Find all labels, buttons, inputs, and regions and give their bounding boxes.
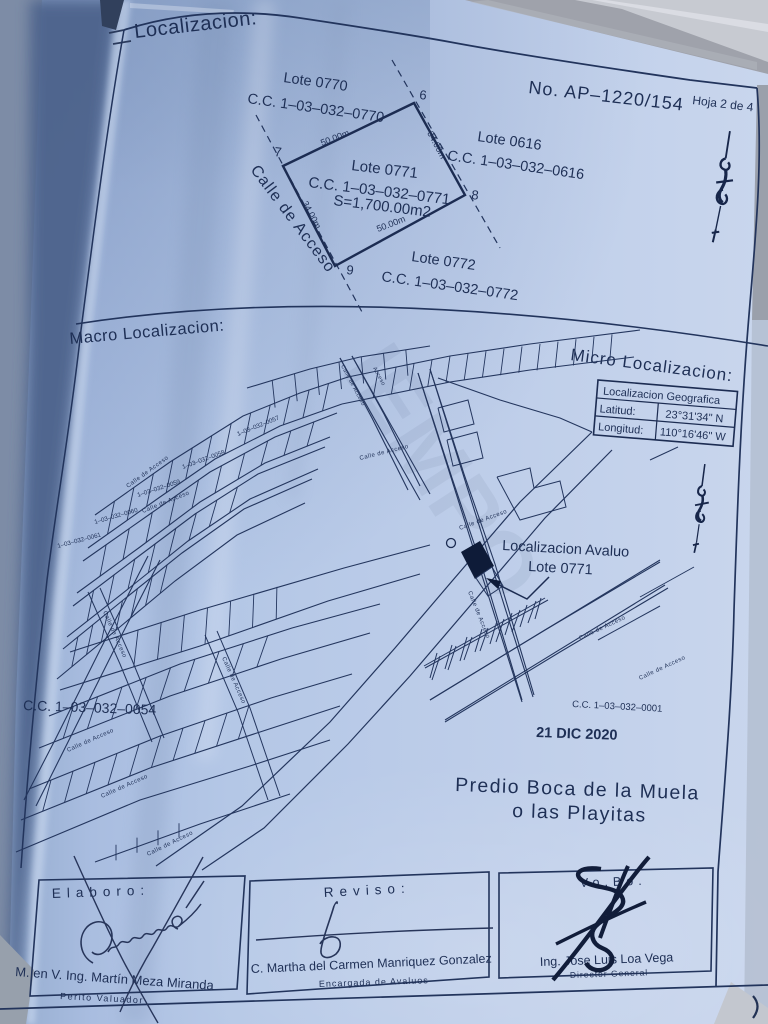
svg-text:21 DIC 2020: 21 DIC 2020 <box>536 725 618 744</box>
svg-text:o las Playitas: o las Playitas <box>512 800 647 827</box>
svg-text:Lote 0771: Lote 0771 <box>528 559 593 578</box>
